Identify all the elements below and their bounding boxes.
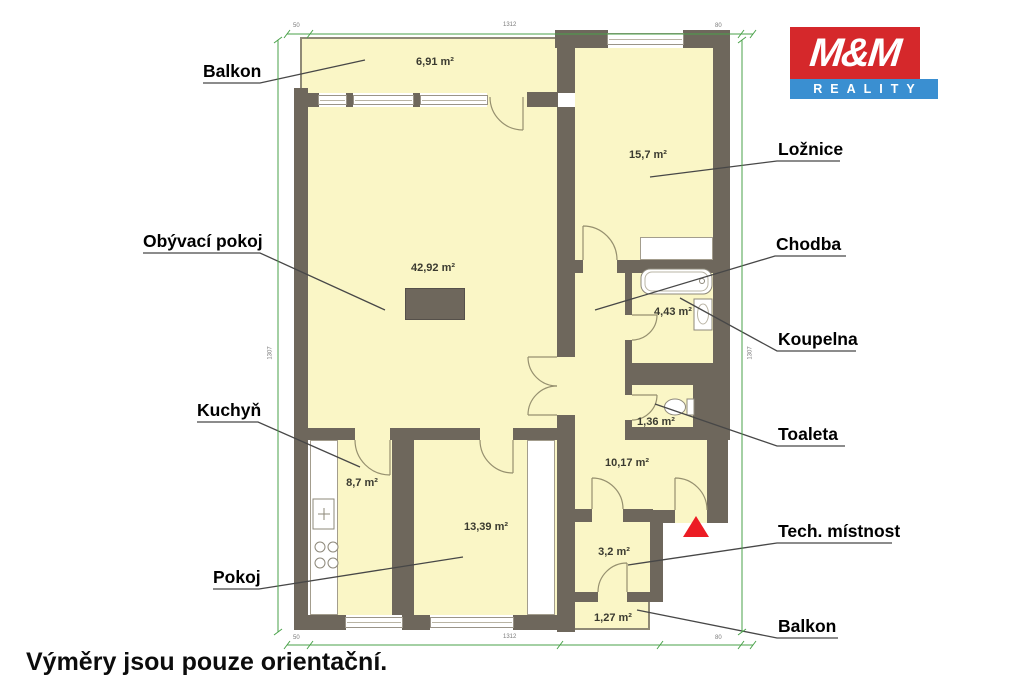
- area-pokoj: 13,39 m²: [464, 521, 508, 533]
- wall: [625, 363, 713, 385]
- wall: [625, 385, 632, 395]
- area-kuchyn: 8,7 m²: [346, 477, 378, 489]
- window: [345, 617, 403, 628]
- dim-top-middle: 1312: [503, 22, 516, 28]
- wall: [392, 433, 414, 615]
- door-opening: [592, 509, 623, 522]
- label-kuchyn: Kuchyň: [197, 401, 261, 420]
- label-toaleta: Toaleta: [778, 425, 838, 444]
- wall: [557, 48, 575, 93]
- mm-reality-logo: M&M: [790, 27, 920, 79]
- wall: [555, 30, 608, 48]
- wall: [575, 509, 592, 522]
- dim-left: 1307: [268, 346, 274, 359]
- wall: [707, 510, 728, 523]
- wall: [625, 427, 730, 440]
- dim-bottom-middle: 1312: [503, 634, 516, 640]
- wall: [294, 88, 308, 615]
- door-opening: [487, 93, 527, 107]
- wall: [650, 522, 663, 602]
- wall: [527, 92, 558, 107]
- door-opening-entrance: [675, 510, 707, 523]
- wall: [623, 509, 653, 522]
- dim-right: 1307: [748, 346, 754, 359]
- label-loznice: Ložnice: [778, 140, 843, 159]
- label-balkon-bottom: Balkon: [778, 617, 836, 636]
- dim-bottom-left: 50: [293, 635, 300, 641]
- area-loznice: 15,7 m²: [629, 149, 667, 161]
- room-chodba-upper-floor: [575, 273, 625, 510]
- wall: [294, 615, 346, 630]
- area-chodba: 10,17 m²: [605, 457, 649, 469]
- wall: [627, 592, 663, 602]
- floorplan-image: Balkon Obývací pokoj Kuchyň Pokoj Ložnic…: [0, 0, 1024, 683]
- door-opening: [625, 315, 632, 340]
- door-opening: [598, 592, 627, 602]
- area-obyvaci-pokoj: 42,92 m²: [411, 262, 455, 274]
- window: [420, 95, 488, 105]
- wall: [625, 420, 632, 427]
- wall: [625, 340, 632, 363]
- wall: [617, 260, 730, 273]
- wall: [713, 30, 730, 440]
- area-balkon-bottom: 1,27 m²: [594, 612, 632, 624]
- area-balkon-top: 6,91 m²: [416, 56, 454, 68]
- wall: [575, 592, 598, 602]
- kitchen-island: [405, 288, 465, 320]
- mm-reality-logo-bar: REALITY: [790, 79, 938, 99]
- area-tech-mistnost: 3,2 m²: [598, 546, 630, 558]
- window: [318, 95, 347, 105]
- area-toaleta: 1,36 m²: [637, 416, 675, 428]
- window: [430, 617, 514, 628]
- window: [353, 95, 414, 105]
- label-obyvaci-pokoj: Obývací pokoj: [143, 232, 263, 251]
- logo-text-mm: M&M: [808, 31, 902, 76]
- dim-bottom-right: 80: [715, 635, 722, 641]
- wardrobe: [527, 440, 555, 615]
- door-opening: [557, 357, 575, 415]
- room-chodba-lower-floor: [625, 440, 707, 510]
- label-tech-mistnost: Tech. místnost: [778, 522, 900, 541]
- wardrobe: [640, 237, 713, 260]
- wall: [693, 385, 713, 427]
- door-opening: [480, 428, 513, 440]
- wall-window-mullion: [346, 93, 353, 107]
- label-pokoj: Pokoj: [213, 568, 261, 587]
- wall: [402, 615, 430, 630]
- logo-text-reality: REALITY: [805, 82, 922, 96]
- wall: [575, 260, 583, 273]
- wall: [307, 428, 355, 440]
- wall: [707, 440, 728, 510]
- dim-top-left: 50: [293, 23, 300, 29]
- door-opening: [583, 260, 617, 273]
- door-opening: [355, 428, 390, 440]
- door-opening: [625, 395, 632, 420]
- label-koupelna: Koupelna: [778, 330, 858, 349]
- wall: [557, 415, 575, 632]
- area-koupelna: 4,43 m²: [654, 306, 692, 318]
- wall: [557, 107, 575, 357]
- room-koupelna-floor: [632, 273, 713, 363]
- window: [607, 33, 684, 45]
- label-chodba: Chodba: [776, 235, 841, 254]
- wall: [513, 428, 557, 440]
- wall-window-mullion: [413, 93, 420, 107]
- label-balkon-top: Balkon: [203, 62, 261, 81]
- wall: [625, 273, 632, 315]
- dim-top-right: 80: [715, 23, 722, 29]
- disclaimer-text: Výměry jsou pouze orientační.: [26, 648, 387, 677]
- kitchen-counter: [310, 440, 338, 615]
